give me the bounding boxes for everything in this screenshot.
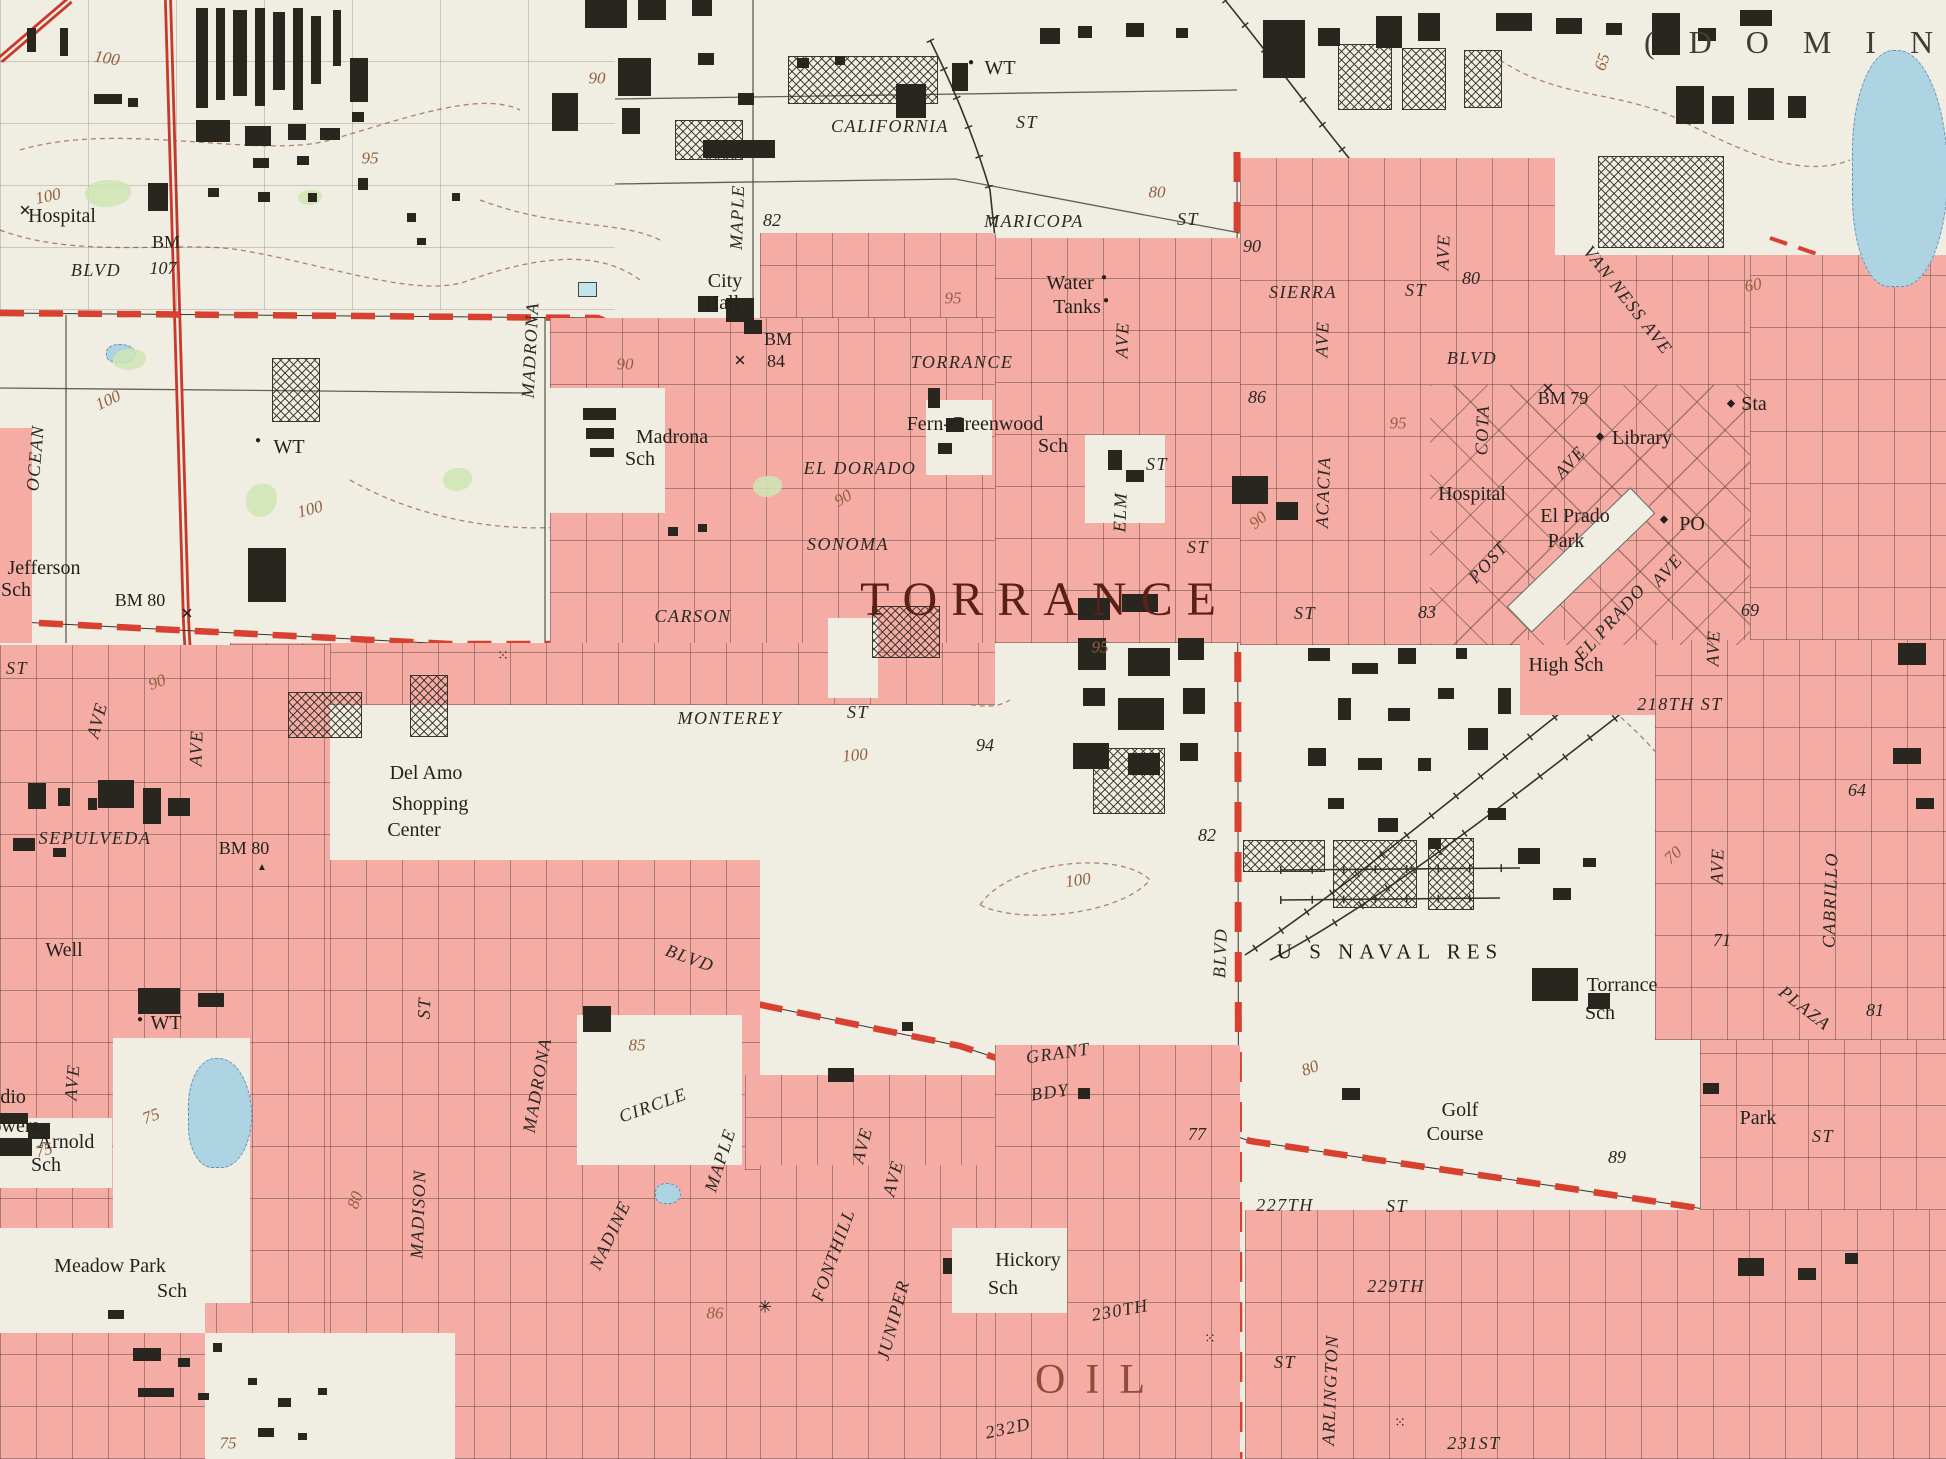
map-label: 81 <box>1866 1001 1884 1019</box>
water-tank-dot: ● <box>1103 296 1109 306</box>
building <box>1176 28 1188 38</box>
map-label: 90 <box>617 356 634 373</box>
building <box>1128 753 1160 775</box>
building <box>585 0 627 28</box>
hatched-building <box>272 358 320 422</box>
map-label: Towers <box>0 1116 39 1136</box>
map-label: OIL <box>1035 1359 1165 1401</box>
map-label: CARSON <box>654 607 731 625</box>
building <box>1352 663 1378 674</box>
map-label: 82 <box>763 211 781 229</box>
urban-area <box>1700 1040 1946 1210</box>
building <box>133 1348 161 1361</box>
building <box>94 94 122 104</box>
map-label: 71 <box>1713 931 1731 949</box>
building <box>53 848 66 857</box>
oil-well-cluster: ⁙ <box>497 650 509 664</box>
map-label: Fern-Greenwood <box>907 414 1044 434</box>
building <box>1738 1258 1764 1276</box>
station-marker: ◆ <box>1727 399 1735 410</box>
building <box>703 140 775 158</box>
building <box>1342 1088 1360 1100</box>
map-label: AVE <box>1707 847 1726 884</box>
map-label: AVE <box>186 729 205 766</box>
map-label: Shopping <box>392 794 469 814</box>
building <box>1276 502 1298 520</box>
building <box>744 320 762 334</box>
building <box>273 12 285 90</box>
building <box>638 0 666 20</box>
map-label: Tanks <box>1053 297 1100 317</box>
water-tank-dot: ● <box>255 436 261 446</box>
building <box>1488 808 1506 820</box>
map-label: Golf <box>1442 1100 1479 1120</box>
building <box>1180 743 1198 761</box>
map-label: WT <box>273 437 304 457</box>
map-label: ST <box>1812 1127 1834 1145</box>
building <box>1118 698 1164 730</box>
building <box>552 93 578 131</box>
map-label: BLVD <box>1447 349 1497 367</box>
urban-area <box>1245 1210 1946 1459</box>
map-label: Sta <box>1741 394 1767 414</box>
map-label: Park <box>1548 531 1585 551</box>
building <box>590 448 614 457</box>
map-label: Jefferson <box>8 558 81 578</box>
map-label: 89 <box>1608 1148 1626 1166</box>
building <box>452 193 460 201</box>
building <box>352 112 364 122</box>
building <box>1712 96 1734 124</box>
map-label: Sch <box>1038 436 1068 456</box>
map-label: ST <box>1146 455 1168 473</box>
building <box>828 1068 854 1082</box>
map-label: ST <box>1187 538 1209 556</box>
map-label: Well <box>45 940 82 960</box>
building <box>168 798 190 816</box>
map-label: ( D O M I N <box>1644 26 1946 58</box>
oil-well-cluster: ⁙ <box>1204 1333 1216 1347</box>
water-tank-dot: ● <box>968 58 974 68</box>
map-label: BM 80 <box>115 591 166 609</box>
channel-water <box>1852 50 1946 287</box>
building <box>1893 748 1921 764</box>
map-label: ST <box>415 997 434 1020</box>
map-label: AVE <box>1312 320 1331 357</box>
building <box>1178 638 1204 660</box>
map-label: 75 <box>220 1435 237 1452</box>
map-label: 80 <box>1149 184 1166 201</box>
building <box>311 16 321 84</box>
building <box>938 443 952 454</box>
map-label: WT <box>984 58 1015 78</box>
map-label: SIERRA <box>1269 283 1337 301</box>
building <box>297 156 309 165</box>
map-label: ELM <box>1110 491 1129 532</box>
reservoir <box>578 282 597 297</box>
map-label: 90 <box>589 70 606 87</box>
building <box>835 56 845 65</box>
map-label: MADRONA <box>518 301 541 398</box>
building <box>1748 88 1774 120</box>
building <box>1583 858 1596 867</box>
water-tank-dot: ● <box>1101 273 1107 283</box>
building <box>198 1393 209 1400</box>
map-label: MADISON <box>407 1169 428 1259</box>
building <box>1398 648 1416 664</box>
map-label: 231ST <box>1447 1434 1501 1452</box>
building <box>128 98 138 107</box>
building <box>98 780 134 808</box>
building <box>258 1428 274 1437</box>
building <box>1183 688 1205 714</box>
building <box>1676 86 1704 124</box>
building <box>196 8 208 108</box>
map-label: 100 <box>842 745 869 764</box>
building <box>245 126 271 146</box>
map-label: 100 <box>93 47 121 68</box>
intermittent-pond <box>188 1058 252 1168</box>
building <box>797 58 809 68</box>
building <box>1898 643 1926 665</box>
map-label: 218TH ST <box>1637 695 1723 713</box>
map-label: BM 79 <box>1538 389 1589 407</box>
map-label: 95 <box>362 150 379 167</box>
building <box>178 1358 190 1367</box>
map-label: ACACIA <box>1313 456 1334 529</box>
building <box>1126 470 1144 482</box>
building <box>1438 688 1454 699</box>
building <box>417 238 426 245</box>
hatched-building <box>1598 156 1724 248</box>
building <box>308 193 317 202</box>
building <box>358 178 368 190</box>
map-label: Sch <box>1585 1003 1615 1023</box>
building <box>1338 698 1351 720</box>
map-label: 100 <box>1064 870 1092 890</box>
map-label: COTA <box>1472 404 1492 455</box>
benchmark-x: ✕ <box>181 608 194 623</box>
building <box>0 1138 32 1156</box>
building <box>1456 648 1467 659</box>
map-label: TORRANCE <box>860 576 1230 624</box>
map-label: El Prado <box>1540 506 1609 526</box>
map-label: AVE <box>1433 233 1452 270</box>
building <box>138 988 180 1014</box>
building <box>213 1343 222 1352</box>
building <box>896 84 926 118</box>
map-label: 95 <box>945 290 962 307</box>
map-label: Sch <box>1 580 31 600</box>
building <box>583 408 616 420</box>
map-label: 84 <box>767 352 785 370</box>
map-label: ST <box>1294 604 1316 622</box>
map-label: ST <box>1386 1197 1408 1215</box>
building <box>1496 13 1532 31</box>
map-label: MARICOPA <box>984 212 1084 230</box>
hatched-building <box>1464 50 1502 108</box>
building <box>943 1258 952 1274</box>
map-label: Torrance <box>1587 975 1658 995</box>
map-label: 90 <box>1243 237 1261 255</box>
building <box>1232 476 1268 504</box>
map-label: SEPULVEDA <box>39 829 152 847</box>
map-label: Library <box>1612 428 1672 448</box>
building <box>1308 648 1330 661</box>
map-label: CABRILLO <box>1819 852 1840 949</box>
building <box>1418 13 1440 41</box>
maricopa-st-line <box>615 179 1240 233</box>
building <box>1378 818 1398 832</box>
building <box>138 1388 174 1397</box>
map-label: 85 <box>629 1037 646 1054</box>
building <box>668 527 678 536</box>
building <box>1418 758 1431 771</box>
map-label: 95 <box>1390 415 1407 432</box>
hatched-building <box>288 692 362 738</box>
map-label: Madrona <box>636 427 708 447</box>
building <box>1845 1253 1858 1264</box>
building <box>196 120 230 142</box>
map-label: BM <box>152 233 180 251</box>
contour-line <box>980 863 1150 915</box>
building <box>1078 26 1092 38</box>
map-label: PO <box>1679 514 1705 534</box>
building <box>293 8 303 110</box>
building <box>1468 728 1488 750</box>
map-label: ST <box>1177 210 1199 228</box>
building <box>407 213 416 222</box>
building <box>1308 748 1326 766</box>
map-label: CALIFORNIA <box>831 117 949 135</box>
hatched-building <box>1243 840 1325 872</box>
map-label: EL DORADO <box>804 459 917 477</box>
building <box>1916 798 1934 809</box>
building <box>350 58 368 102</box>
building <box>902 1022 913 1031</box>
building <box>1128 648 1170 676</box>
map-label: Sch <box>625 449 655 469</box>
building <box>692 0 712 16</box>
urban-area <box>1750 255 1946 640</box>
map-label: 107 <box>150 259 177 277</box>
map-label: Park <box>1740 1108 1777 1128</box>
map-label: Hall <box>705 293 739 313</box>
map-label: MONTEREY <box>677 709 782 727</box>
map-label: BLVD <box>71 261 121 279</box>
building <box>298 1433 307 1440</box>
building <box>60 28 68 56</box>
map-label: 83 <box>1418 603 1436 621</box>
building <box>258 192 270 202</box>
map-label: ST <box>1016 113 1038 131</box>
map-label: Hospital <box>28 206 96 226</box>
map-label: 95 <box>1092 639 1109 656</box>
building <box>1108 450 1122 470</box>
building <box>108 1310 124 1319</box>
map-label: WT <box>150 1013 181 1033</box>
building <box>1358 758 1382 770</box>
map-label: City <box>708 271 742 291</box>
map-label: 86 <box>707 1305 724 1322</box>
school-grounds-white <box>828 618 878 698</box>
building <box>1040 28 1060 44</box>
small-pond <box>655 1183 681 1204</box>
building <box>1498 688 1511 714</box>
building <box>253 158 269 168</box>
building <box>88 798 97 810</box>
map-label: 229TH <box>1367 1277 1425 1295</box>
map-label: Water <box>1046 273 1093 293</box>
building <box>928 388 940 408</box>
building <box>698 53 714 65</box>
map-label: U S NAVAL RES <box>1277 942 1503 963</box>
hatched-building <box>1338 44 1392 110</box>
oil-well-sunburst: ✳ <box>758 1299 772 1316</box>
building <box>1553 888 1571 900</box>
library-marker: ◆ <box>1596 432 1604 443</box>
map-label: BLVD <box>1210 928 1230 979</box>
map-label: 94 <box>976 736 994 754</box>
topographic-map-canvas[interactable]: ✕✕✕✕●●●●●◆◆◆▲⁙⁙⁙✳HospitalBMBLVD107OCEAN1… <box>0 0 1946 1459</box>
building <box>583 1006 611 1032</box>
building <box>58 788 70 806</box>
map-label: TORRANCE <box>911 353 1014 371</box>
map-label: Course <box>1427 1124 1484 1144</box>
urban-area <box>1240 158 1555 258</box>
hatched-building <box>1402 48 1446 110</box>
map-label: Meadow Park <box>54 1256 166 1276</box>
building <box>1606 23 1622 35</box>
map-label: Del Amo <box>390 763 463 783</box>
map-label: 77 <box>1188 1125 1206 1143</box>
building <box>1083 688 1105 706</box>
benchmark-triangle: ▲ <box>257 863 267 873</box>
urban-area <box>745 1075 995 1170</box>
building <box>208 188 219 197</box>
building <box>1126 23 1144 37</box>
building <box>143 788 161 824</box>
building <box>1798 1268 1816 1280</box>
building <box>1556 18 1582 34</box>
map-label: 86 <box>1248 388 1266 406</box>
map-label: Center <box>387 820 440 840</box>
map-label: ST <box>1274 1353 1296 1371</box>
map-label: 82 <box>1198 826 1216 844</box>
map-label: BM <box>764 330 792 348</box>
building <box>1388 708 1410 721</box>
building <box>248 1378 257 1385</box>
map-label: 64 <box>1848 781 1866 799</box>
open-block-white <box>205 1333 455 1459</box>
building <box>1703 1083 1719 1094</box>
building <box>952 63 968 91</box>
map-label: Sch <box>988 1278 1018 1298</box>
map-label: Radio <box>0 1087 26 1107</box>
building <box>1263 20 1305 78</box>
school-grounds-white <box>926 400 992 475</box>
building <box>1073 743 1109 769</box>
building <box>216 8 225 100</box>
map-label: 60 <box>1743 275 1763 295</box>
building <box>622 108 640 134</box>
building <box>1328 798 1344 809</box>
building <box>1532 968 1578 1001</box>
building <box>1318 28 1340 46</box>
map-label: AVE <box>1112 321 1131 358</box>
building <box>13 838 35 851</box>
building <box>1428 838 1441 849</box>
building <box>288 124 306 140</box>
map-label: Sch <box>157 1281 187 1301</box>
hatched-building <box>1333 840 1417 908</box>
street-line <box>0 388 530 393</box>
building <box>586 428 614 439</box>
map-label: 227TH <box>1256 1196 1314 1214</box>
building <box>233 10 247 96</box>
benchmark-x: ✕ <box>734 355 747 370</box>
building <box>698 524 707 532</box>
map-label: MAPLE <box>727 184 747 250</box>
hatched-building <box>410 675 448 737</box>
building <box>148 183 168 211</box>
building <box>1788 96 1806 118</box>
map-label: AVE <box>1703 629 1722 666</box>
building <box>333 10 341 66</box>
building <box>318 1388 327 1395</box>
map-label: BM 80 <box>219 839 270 857</box>
building <box>248 548 286 602</box>
building <box>255 8 265 106</box>
building <box>738 93 754 105</box>
map-label: AVE <box>61 1063 82 1101</box>
building <box>27 28 36 52</box>
building <box>1376 16 1402 48</box>
building <box>198 993 224 1007</box>
map-label: ARLINGTON <box>1319 1334 1341 1446</box>
building <box>618 58 651 96</box>
map-label: Hospital <box>1438 484 1506 504</box>
building <box>1078 1088 1090 1099</box>
map-label: 80 <box>1462 269 1480 287</box>
map-label: Hickory <box>995 1250 1061 1270</box>
map-label: ST <box>847 703 869 721</box>
map-label: SONOMA <box>807 535 889 553</box>
building <box>28 783 46 809</box>
map-label: 69 <box>1741 601 1759 619</box>
map-label: ST <box>1405 281 1427 299</box>
post-office-marker: ◆ <box>1660 515 1668 526</box>
building <box>278 1398 291 1407</box>
water-tank-dot: ● <box>137 1015 143 1025</box>
map-label: High Sch <box>1529 655 1604 675</box>
map-label: ST <box>6 659 28 677</box>
building <box>320 128 340 140</box>
building <box>1518 848 1540 864</box>
oil-well-cluster: ⁙ <box>1394 1417 1406 1431</box>
